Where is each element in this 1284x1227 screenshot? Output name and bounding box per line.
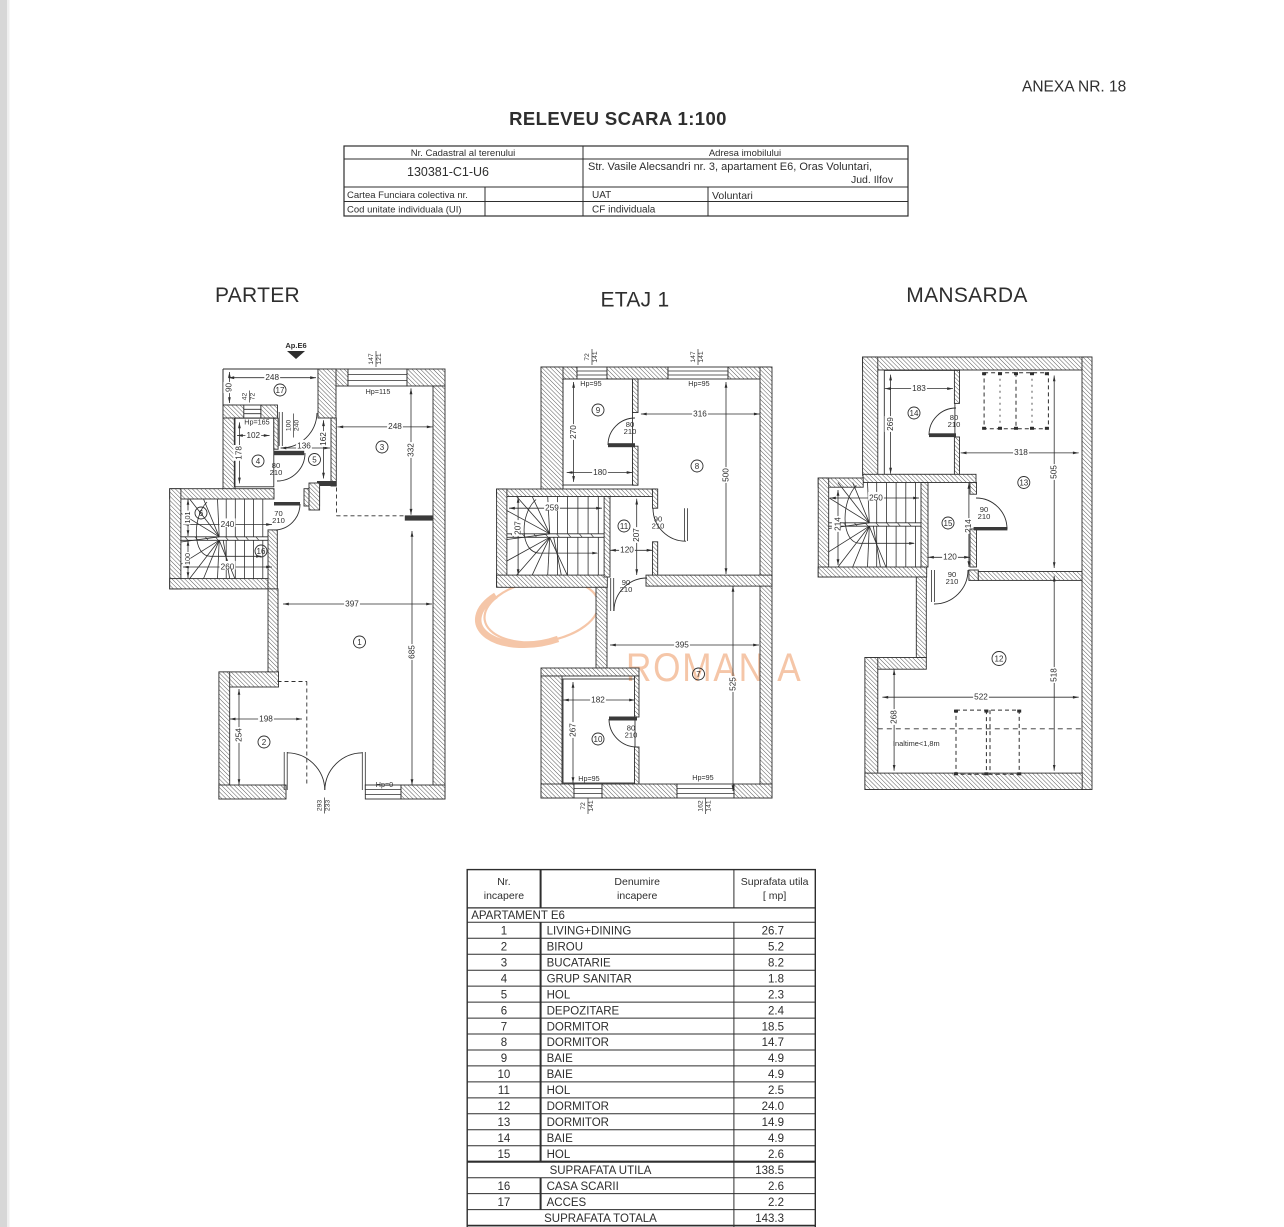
svg-text:Denumire: Denumire [614, 876, 660, 888]
svg-text:210: 210 [946, 577, 959, 586]
svg-text:Cod unitate individuala (UI): Cod unitate individuala (UI) [347, 205, 462, 216]
svg-text:1: 1 [501, 926, 507, 938]
svg-text:12: 12 [498, 1101, 511, 1113]
svg-text:ROMANIA: ROMANIA [626, 645, 803, 690]
svg-text:10: 10 [594, 735, 603, 744]
svg-text:SUPRAFATA UTILA: SUPRAFATA UTILA [550, 1165, 652, 1177]
svg-text:267: 267 [568, 723, 577, 737]
svg-text:8: 8 [695, 462, 700, 471]
svg-text:397: 397 [345, 599, 359, 608]
svg-text:GRUP SANITAR: GRUP SANITAR [547, 973, 632, 985]
svg-text:210: 210 [270, 468, 283, 477]
svg-text:8: 8 [501, 1037, 507, 1049]
svg-text:210: 210 [978, 512, 991, 521]
svg-text:3: 3 [501, 957, 507, 969]
svg-text:DORMITOR: DORMITOR [547, 1117, 609, 1129]
svg-text:24.0: 24.0 [762, 1101, 784, 1113]
svg-text:141: 141 [706, 800, 713, 812]
svg-text:8.2: 8.2 [768, 957, 784, 969]
svg-text:13: 13 [1019, 478, 1028, 487]
svg-text:500: 500 [721, 468, 730, 482]
svg-text:2.5: 2.5 [768, 1085, 784, 1097]
svg-text:120: 120 [943, 553, 957, 562]
svg-text:HOL: HOL [547, 989, 571, 1001]
svg-text:HOL: HOL [547, 1149, 571, 1161]
svg-text:178: 178 [235, 446, 244, 460]
svg-text:CF individuala: CF individuala [592, 205, 656, 216]
svg-text:16: 16 [257, 547, 266, 556]
svg-text:14.7: 14.7 [762, 1037, 784, 1049]
svg-text:136: 136 [297, 441, 311, 450]
svg-text:210: 210 [620, 585, 633, 594]
svg-text:10: 10 [498, 1069, 511, 1081]
svg-text:11: 11 [498, 1085, 510, 1097]
svg-text:147: 147 [690, 351, 697, 363]
svg-text:Str. Vasile Alecsandri nr. 3,: Str. Vasile Alecsandri nr. 3, apartament… [588, 161, 872, 173]
svg-text:2.2: 2.2 [768, 1197, 784, 1209]
svg-text:Nr. Cadastral al terenului: Nr. Cadastral al terenului [411, 148, 516, 159]
svg-text:2.6: 2.6 [768, 1181, 784, 1193]
svg-text:7: 7 [501, 1021, 507, 1033]
svg-text:RELEVEU SCARA 1:100: RELEVEU SCARA 1:100 [509, 108, 727, 129]
svg-text:PARTER: PARTER [215, 284, 300, 307]
svg-text:BAIE: BAIE [547, 1053, 574, 1065]
svg-text:MANSARDA: MANSARDA [906, 284, 1027, 307]
svg-text:ACCES: ACCES [547, 1197, 587, 1209]
svg-text:183: 183 [912, 384, 926, 393]
svg-text:102: 102 [246, 431, 260, 440]
svg-text:7: 7 [696, 670, 701, 679]
svg-text:182: 182 [591, 695, 605, 704]
svg-text:72: 72 [584, 353, 591, 361]
svg-text:207: 207 [513, 521, 522, 535]
svg-text:525: 525 [728, 677, 737, 691]
svg-text:162: 162 [319, 432, 328, 446]
svg-text:UAT: UAT [592, 190, 611, 201]
svg-text:42: 42 [241, 393, 248, 401]
svg-text:Hp=165: Hp=165 [244, 418, 269, 427]
svg-text:BAIE: BAIE [547, 1069, 574, 1081]
svg-text:17: 17 [276, 386, 285, 395]
svg-text:332: 332 [406, 443, 415, 457]
svg-text:316: 316 [693, 409, 707, 418]
svg-text:13: 13 [498, 1117, 511, 1129]
svg-text:Hp=95: Hp=95 [688, 379, 709, 388]
svg-text:248: 248 [265, 373, 279, 382]
svg-text:4.9: 4.9 [768, 1069, 784, 1081]
svg-text:incapere: incapere [617, 890, 657, 902]
svg-text:15: 15 [944, 519, 953, 528]
svg-text:147: 147 [368, 353, 375, 365]
svg-text:CASA SCARII: CASA SCARII [547, 1181, 619, 1193]
svg-text:Ap.E6: Ap.E6 [285, 341, 306, 350]
svg-text:121: 121 [376, 353, 383, 365]
svg-text:293: 293 [316, 800, 323, 812]
svg-text:270: 270 [569, 425, 578, 439]
svg-text:685: 685 [407, 645, 416, 659]
svg-text:210: 210 [625, 731, 638, 740]
svg-text:5: 5 [312, 455, 317, 464]
svg-text:5.2: 5.2 [768, 942, 784, 954]
svg-text:120: 120 [620, 546, 634, 555]
svg-text:APARTAMENT E6: APARTAMENT E6 [471, 910, 565, 922]
svg-text:254: 254 [234, 728, 243, 742]
svg-text:395: 395 [675, 640, 689, 649]
svg-text:248: 248 [388, 422, 402, 431]
svg-text:4: 4 [501, 973, 508, 985]
svg-text:6: 6 [501, 1005, 507, 1017]
svg-text:210: 210 [624, 427, 637, 436]
svg-text:141: 141 [698, 351, 705, 363]
svg-text:9: 9 [501, 1053, 507, 1065]
svg-text:259: 259 [545, 504, 559, 513]
svg-text:5: 5 [501, 989, 507, 1001]
svg-text:233: 233 [325, 800, 332, 812]
svg-text:17: 17 [498, 1197, 511, 1209]
svg-text:318: 318 [1014, 448, 1028, 457]
svg-text:9: 9 [596, 406, 601, 415]
svg-text:2.4: 2.4 [768, 1005, 785, 1017]
svg-text:72: 72 [250, 393, 257, 401]
svg-text:Hp=0: Hp=0 [376, 780, 393, 789]
svg-text:BAIE: BAIE [547, 1133, 574, 1145]
svg-text:240: 240 [221, 520, 235, 529]
svg-text:DORMITOR: DORMITOR [547, 1037, 609, 1049]
svg-text:90: 90 [225, 383, 234, 393]
svg-text:ETAJ 1: ETAJ 1 [600, 289, 669, 312]
svg-text:269: 269 [886, 417, 895, 431]
svg-text:2.6: 2.6 [768, 1149, 784, 1161]
svg-text:14.9: 14.9 [762, 1117, 784, 1129]
svg-text:72: 72 [580, 802, 587, 810]
svg-text:505: 505 [1050, 465, 1059, 479]
svg-text:210: 210 [272, 516, 285, 525]
svg-text:210: 210 [948, 420, 961, 429]
svg-text:Suprafata utila: Suprafata utila [741, 876, 809, 888]
svg-text:3: 3 [380, 443, 385, 452]
svg-text:6: 6 [199, 509, 204, 518]
svg-text:HOL: HOL [547, 1085, 571, 1097]
svg-text:Adresa imobilului: Adresa imobilului [709, 148, 781, 159]
svg-text:141: 141 [588, 800, 595, 812]
svg-text:15: 15 [498, 1149, 511, 1161]
svg-text:2.3: 2.3 [768, 989, 784, 1001]
svg-text:207: 207 [632, 528, 641, 542]
svg-text:138.5: 138.5 [755, 1165, 784, 1177]
svg-text:BUCATARIE: BUCATARIE [547, 957, 611, 969]
svg-text:11: 11 [620, 522, 629, 531]
svg-text:DORMITOR: DORMITOR [547, 1021, 609, 1033]
svg-text:18.5: 18.5 [762, 1021, 784, 1033]
svg-text:Hp=115: Hp=115 [366, 387, 391, 396]
svg-text:130381-C1-U6: 130381-C1-U6 [407, 165, 489, 179]
svg-text:Voluntari: Voluntari [712, 190, 753, 202]
svg-text:162: 162 [697, 800, 704, 812]
svg-text:BIROU: BIROU [547, 942, 583, 954]
svg-text:2: 2 [262, 738, 267, 747]
svg-text:143.3: 143.3 [755, 1213, 784, 1225]
svg-text:Hp=95: Hp=95 [692, 773, 713, 782]
svg-text:incapere: incapere [484, 890, 524, 902]
svg-text:180: 180 [593, 468, 607, 477]
svg-text:100: 100 [183, 553, 192, 565]
svg-text:198: 198 [259, 714, 273, 723]
svg-text:Hp=95: Hp=95 [578, 774, 599, 783]
svg-text:DEPOZITARE: DEPOZITARE [547, 1005, 620, 1017]
svg-text:240: 240 [294, 420, 301, 432]
svg-text:214: 214 [833, 517, 842, 531]
svg-text:Cartea Funciara colectiva nr.: Cartea Funciara colectiva nr. [347, 190, 468, 201]
svg-text:250: 250 [869, 493, 883, 502]
svg-text:14: 14 [498, 1133, 511, 1145]
svg-text:Hp=95: Hp=95 [580, 379, 601, 388]
svg-text:100: 100 [285, 420, 292, 432]
svg-text:4.9: 4.9 [768, 1133, 784, 1145]
svg-text:2: 2 [501, 942, 507, 954]
svg-text:522: 522 [974, 693, 988, 702]
svg-text:268: 268 [889, 710, 898, 724]
svg-text:260: 260 [221, 562, 235, 571]
svg-text:[ mp]: [ mp] [763, 890, 786, 902]
svg-text:Nr.: Nr. [497, 876, 510, 888]
svg-text:4: 4 [256, 457, 261, 466]
svg-text:141: 141 [592, 351, 599, 363]
svg-text:210: 210 [652, 522, 665, 531]
svg-text:26.7: 26.7 [762, 926, 784, 938]
svg-text:14: 14 [910, 409, 919, 418]
svg-text:Inaltime<1,8m: Inaltime<1,8m [893, 739, 940, 748]
svg-text:DORMITOR: DORMITOR [547, 1101, 609, 1113]
svg-text:SUPRAFATA TOTALA: SUPRAFATA TOTALA [544, 1213, 657, 1225]
svg-text:16: 16 [498, 1181, 511, 1193]
svg-text:12: 12 [995, 654, 1004, 663]
svg-text:101: 101 [183, 512, 192, 524]
svg-text:ANEXA NR. 18: ANEXA NR. 18 [1022, 79, 1126, 96]
svg-text:LIVING+DINING: LIVING+DINING [547, 926, 632, 938]
svg-text:Jud. Ilfov: Jud. Ilfov [851, 174, 894, 186]
svg-text:518: 518 [1050, 668, 1059, 682]
svg-text:1: 1 [357, 638, 362, 647]
svg-text:4.9: 4.9 [768, 1053, 784, 1065]
svg-text:1.8: 1.8 [768, 973, 784, 985]
